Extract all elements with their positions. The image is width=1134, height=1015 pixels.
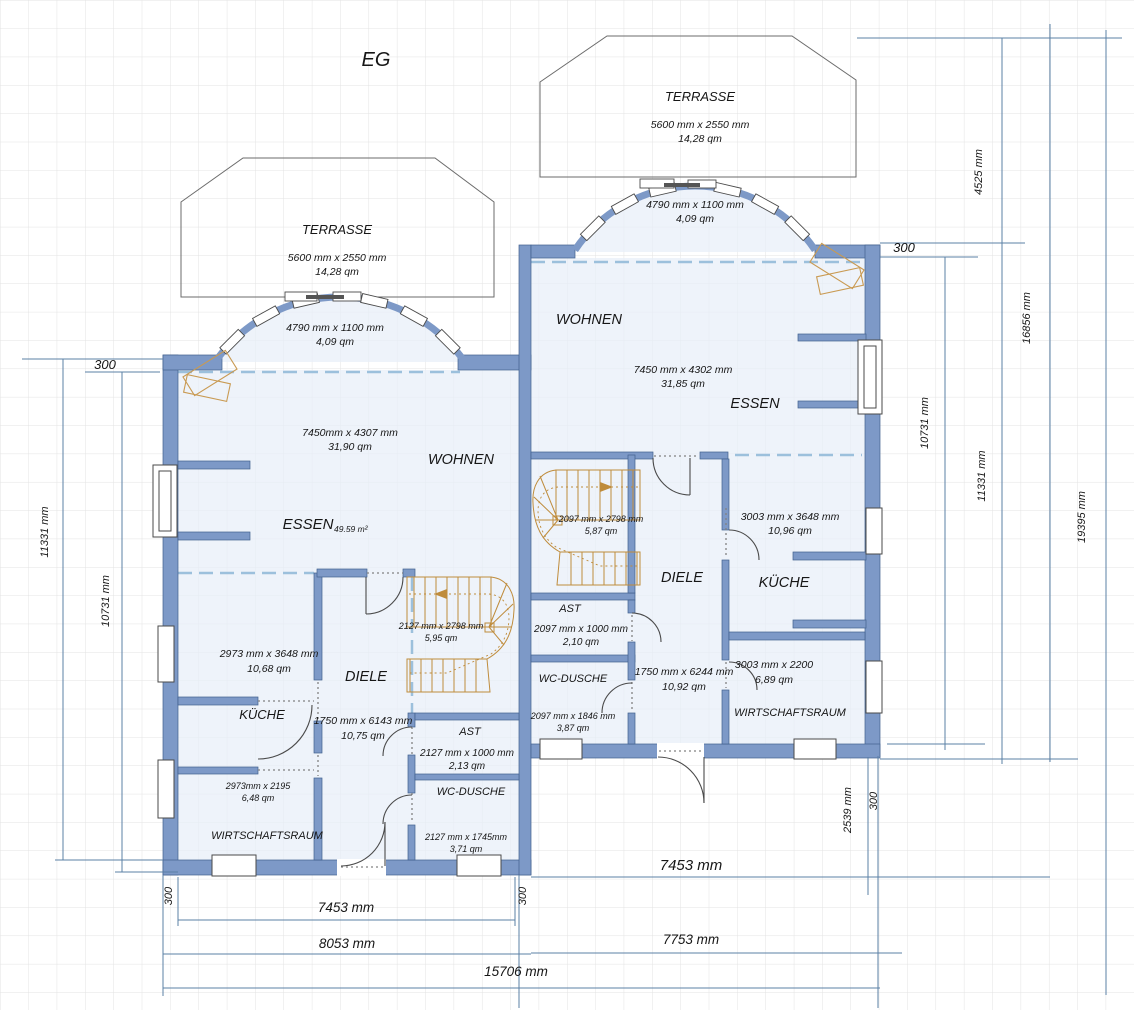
room-label-hwr-right: WIRTSCHAFTSRAUM (734, 707, 846, 719)
room-label-wc-right: WC-DUSCHE (539, 673, 608, 685)
wall-segment (314, 778, 322, 860)
wall-segment (415, 774, 519, 780)
wc-right-size: 2097 mm x 1846 mm (530, 711, 616, 721)
room-label-terrasse-left: TERRASSE (302, 222, 372, 237)
wc-left-size: 2127 mm x 1745mm (424, 832, 508, 842)
dim-bottom-8053: 8053 mm (319, 936, 375, 951)
room-label-wohnen-right: WOHNEN (556, 312, 623, 328)
ast-right-area: 2,10 qm (562, 637, 599, 648)
wall-segment (163, 355, 222, 370)
dim-left-10731: 10731 mm (100, 575, 112, 627)
dim-right-10731: 10731 mm (919, 397, 931, 449)
room-label-ast-right: AST (558, 603, 582, 615)
wall-segment (729, 632, 865, 640)
wall-segment (178, 532, 250, 540)
dim-right-11331: 11331 mm (976, 450, 988, 501)
room-label-diele-left: DIELE (345, 669, 387, 685)
dim-bottom-15706: 15706 mm (484, 964, 548, 979)
dim-right-2539: 2539 mm (842, 787, 854, 834)
wc-right-area: 3,87 qm (557, 723, 590, 733)
room-label-kueche-left: KÜCHE (239, 707, 285, 722)
wall-segment (408, 825, 415, 860)
wall-segment (628, 600, 635, 613)
page-title: EG (362, 49, 391, 71)
bay-threshold-right (664, 183, 700, 187)
wohnen-right-size: 7450 mm x 4302 mm (634, 364, 733, 376)
wall-segment (793, 552, 866, 560)
wall-segment (628, 713, 635, 744)
stairs-right-size: 2097 mm x 2798 mm (558, 514, 644, 524)
diele-left-size: 1750 mm x 6143 mm (314, 715, 413, 727)
kueche-left-size: 2973 mm x 3648 mm (219, 648, 319, 660)
terrasse-left-size: 5600 mm x 2550 mm (288, 252, 387, 264)
wall-segment (798, 401, 866, 408)
room-label-wc-left: WC-DUSCHE (437, 786, 506, 798)
dim-right-300-top: 300 (893, 240, 915, 255)
wall-segment (722, 560, 729, 660)
window (794, 739, 836, 759)
wall-segment (531, 655, 635, 662)
floorplan-svg: EG TERRASSE 5600 mm x 2550 mm 14,28 qm 4… (0, 0, 1134, 1010)
essen-left-area: 49.59 m² (334, 524, 369, 534)
wall-segment (793, 620, 866, 628)
stairs-left-size: 2127 mm x 2798 mm (398, 621, 484, 631)
wc-left-area: 3,71 qm (450, 844, 483, 854)
diele-left-area: 10,75 qm (341, 730, 385, 742)
hwr-right-area: 6,89 qm (755, 674, 793, 686)
room-label-hwr-left: WIRTSCHAFTSRAUM (211, 830, 323, 842)
dim-right-unit-7753: 7753 mm (663, 932, 719, 947)
dim-bottom-left-300: 300 (163, 886, 175, 905)
wall-segment (531, 593, 635, 600)
dim-right-unit-7453: 7453 mm (660, 857, 723, 874)
room-label-ast-left: AST (458, 726, 482, 738)
window (212, 855, 256, 876)
dim-left-11331: 11331 mm (39, 506, 51, 557)
room-label-kueche-right: KÜCHE (759, 573, 810, 591)
room-label-essen-right: ESSEN (730, 396, 780, 412)
floorplan-canvas: EG TERRASSE 5600 mm x 2550 mm 14,28 qm 4… (0, 0, 1134, 1010)
ast-right-size: 2097 mm x 1000 mm (533, 624, 628, 635)
dim-left-300: 300 (94, 357, 116, 372)
bay-left-area: 4,09 qm (316, 336, 354, 348)
dim-right-4525: 4525 mm (973, 149, 985, 195)
window (866, 508, 882, 554)
ast-left-size: 2127 mm x 1000 mm (419, 748, 514, 759)
kueche-right-area: 10,96 qm (768, 525, 812, 537)
kueche-left-area: 10,68 qm (247, 663, 291, 675)
wall-segment (314, 573, 322, 680)
window-sash (159, 471, 171, 531)
window-sash (864, 346, 876, 408)
wall-segment (798, 334, 866, 341)
wall-segment (408, 755, 415, 793)
bay-right-size: 4790 mm x 1100 mm (646, 199, 744, 211)
bay-threshold-left (306, 295, 344, 299)
dim-right-16856: 16856 mm (1021, 292, 1033, 344)
room-label-diele-right: DIELE (661, 570, 703, 586)
room-label-terrasse-right: TERRASSE (665, 89, 735, 104)
window (158, 626, 174, 682)
window (540, 739, 582, 759)
hwr-left-size: 2973mm x 2195 (225, 781, 292, 791)
wall-segment (317, 569, 367, 577)
window (866, 661, 882, 713)
stairs-right-area: 5,87 qm (585, 526, 618, 536)
bay-left-size: 4790 mm x 1100 mm (286, 322, 384, 334)
window (457, 855, 501, 876)
wall-segment (403, 569, 415, 577)
terrasse-right-area: 14,28 qm (678, 133, 722, 145)
stairs-left-area: 5,95 qm (425, 633, 458, 643)
dim-right-300-bottom: 300 (868, 791, 880, 810)
wall-segment (178, 767, 258, 774)
wall-segment (531, 245, 575, 258)
wohnen-right-area: 31,85 qm (661, 378, 705, 390)
diele-right-area: 10,92 qm (662, 681, 706, 693)
terrasse-left-area: 14,28 qm (315, 266, 359, 278)
hwr-left-area: 6,48 qm (242, 793, 275, 803)
wall-segment (700, 452, 728, 459)
room-label-wohnen-left: WOHNEN (428, 452, 495, 468)
room-label-essen-left: ESSEN (283, 516, 334, 533)
ast-left-area: 2,13 qm (448, 761, 485, 772)
hwr-right-size: 3003 mm x 2200 (735, 659, 813, 671)
diele-right-size: 1750 mm x 6244 mm (635, 666, 734, 678)
wall-segment (178, 461, 250, 469)
dim-bottom-mid-300: 300 (517, 886, 529, 905)
wall-segment (628, 455, 635, 593)
wall-segment (722, 690, 729, 744)
wohnen-left-area: 31,90 qm (328, 441, 372, 453)
wohnen-left-size: 7450mm x 4307 mm (302, 427, 398, 439)
party-wall (519, 245, 531, 875)
wall-segment (178, 697, 258, 705)
bay-right-area: 4,09 qm (676, 213, 714, 225)
kueche-right-size: 3003 mm x 3648 mm (741, 511, 840, 523)
wall-segment (415, 713, 519, 720)
dim-bottom-7453: 7453 mm (318, 900, 374, 915)
terrasse-right-size: 5600 mm x 2550 mm (651, 119, 750, 131)
dim-right-19395: 19395 mm (1076, 491, 1088, 543)
window (158, 760, 174, 818)
